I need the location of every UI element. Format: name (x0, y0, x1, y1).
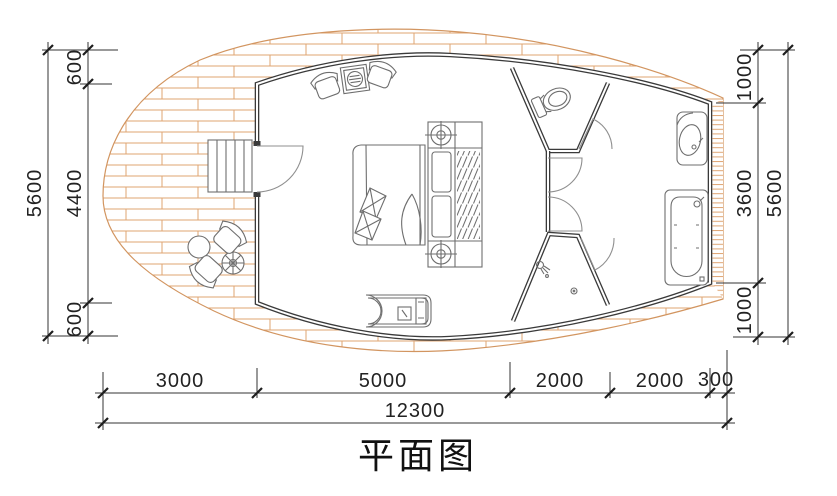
dim-bottom-total: 12300 (385, 400, 446, 422)
dimension-bottom: 3000 5000 2000 2000 300 12300 (95, 350, 735, 430)
side-table (340, 64, 369, 93)
dim-bottom-4: 2000 (636, 370, 685, 392)
dim-left-total: 5600 (24, 169, 46, 218)
hanging-clothes (457, 151, 480, 239)
floor-plan-page: 3000 5000 2000 2000 300 12300 600 4400 6… (0, 0, 837, 496)
dim-left-1: 600 (64, 49, 86, 85)
dim-right-total: 5600 (764, 169, 786, 218)
dim-left-2: 4400 (64, 169, 86, 218)
dim-bottom-5: 300 (698, 369, 734, 391)
round-table (188, 236, 210, 258)
stairs (208, 140, 252, 192)
sink (677, 112, 707, 165)
floor-plan-drawing: 3000 5000 2000 2000 300 12300 600 4400 6… (0, 0, 837, 496)
deck-plank-strip (713, 100, 724, 299)
dim-bottom-3: 2000 (536, 370, 585, 392)
dim-right-3: 1000 (734, 286, 756, 335)
dim-right-1: 1000 (734, 53, 756, 102)
dim-bottom-2: 5000 (359, 370, 408, 392)
headboard-wardrobe (425, 121, 482, 268)
bathtub (665, 190, 708, 285)
dim-bottom-1: 3000 (156, 370, 205, 392)
dim-right-2: 3600 (734, 169, 756, 218)
dimension-right: 1000 3600 1000 5600 (716, 42, 795, 345)
parasol-base (222, 252, 244, 274)
drawing-title: 平面图 (358, 435, 478, 476)
bed (353, 145, 425, 245)
dim-left-3: 600 (64, 301, 86, 337)
